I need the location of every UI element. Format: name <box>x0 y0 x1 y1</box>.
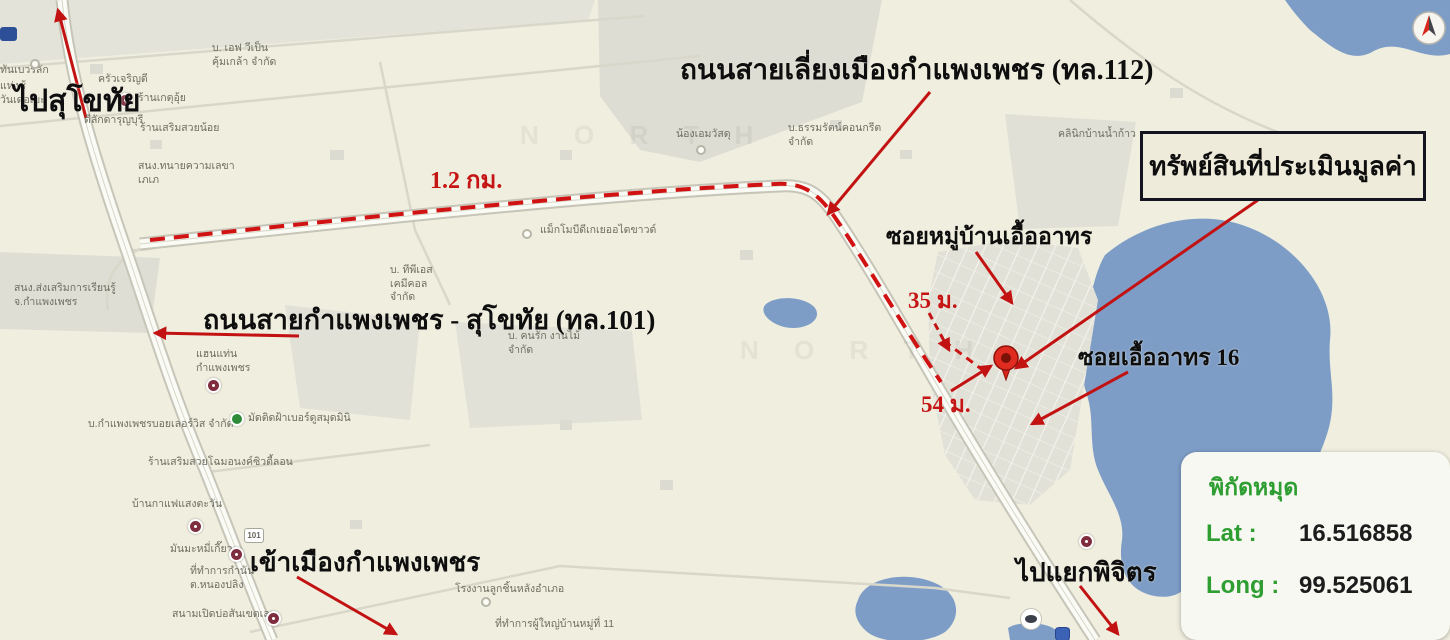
long-value: 99.525061 <box>1299 572 1412 600</box>
panel-title: พิกัดหมุด <box>1209 470 1298 506</box>
long-label: Long : <box>1206 572 1279 600</box>
map-screenshot: บ. เอฟ วีเป็น คุ้มเกล้า จำกัดครัวเจริญดี… <box>0 0 1450 640</box>
compass-icon <box>1413 12 1445 44</box>
to-phichit-label: ไปแยกพิจิตร <box>1016 552 1157 593</box>
property-box-label: ทรัพย์สินที่ประเมินมูลค่า <box>1149 146 1417 187</box>
arrow-bypass-label <box>828 92 930 214</box>
arrow-to-city <box>297 577 396 634</box>
to-sukhothai-label: ไปสุโขทัย <box>14 78 140 125</box>
property-box: ทรัพย์สินที่ประเมินมูลค่า <box>1140 131 1426 201</box>
village-grid <box>928 240 1098 505</box>
bypass-road-label: ถนนสายเลี่ยงเมืองกำแพงเพชร (ทล.112) <box>680 48 1153 92</box>
coordinates-panel: พิกัดหมุด Lat : 16.516858 Long : 99.5250… <box>1181 452 1450 640</box>
lat-value: 16.516858 <box>1299 520 1412 548</box>
water-pond-left <box>763 298 817 328</box>
water-pond-bottom-small <box>1008 623 1058 640</box>
soi-mu-ban-label: ซอยหมู่บ้านเอื้ออาทร <box>886 219 1092 255</box>
lat-label: Lat : <box>1206 520 1257 548</box>
road-101-label: ถนนสายกำแพงเพชร - สุโขทัย (ทล.101) <box>203 298 655 341</box>
soi-16-label: ซอยเอื้ออาทร 16 <box>1078 340 1239 376</box>
to-city-label: เข้าเมืองกำแพงเพชร <box>250 542 480 583</box>
distance-35m-label: 35 ม. <box>908 283 958 319</box>
distance-1-2km-label: 1.2 กม. <box>430 160 502 199</box>
distance-54m-label: 54 ม. <box>921 387 971 423</box>
